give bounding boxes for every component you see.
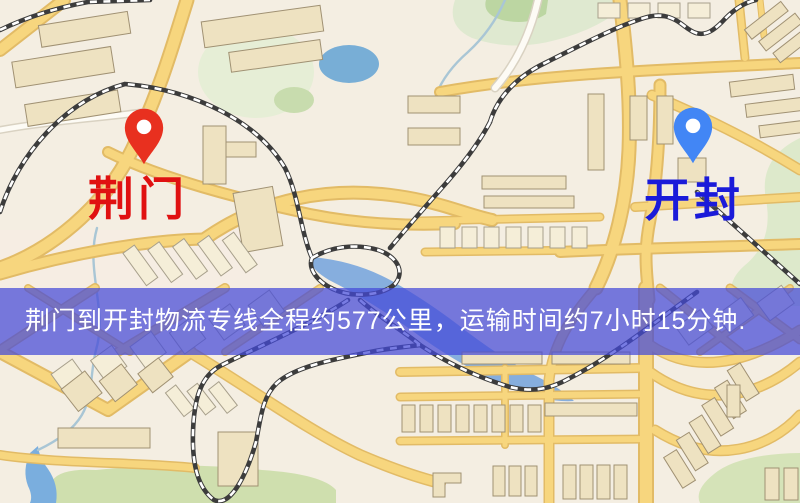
route-info-banner: 荆门到开封物流专线全程约577公里，运输时间约7小时15分钟. (0, 288, 800, 355)
destination-pin-icon[interactable] (672, 104, 714, 166)
logistics-map-image: 荆门 开封 荆门到开封物流专线全程约577公里，运输时间约7小时15分钟. (0, 0, 800, 503)
origin-pin-icon[interactable] (123, 105, 165, 167)
destination-city-label: 开封 (644, 177, 744, 223)
route-info-text: 荆门到开封物流专线全程约577公里，运输时间约7小时15分钟. (25, 307, 746, 335)
building-square-row-upper (440, 227, 587, 248)
origin-city-label: 荆门 (88, 176, 188, 222)
map-background (0, 0, 800, 503)
